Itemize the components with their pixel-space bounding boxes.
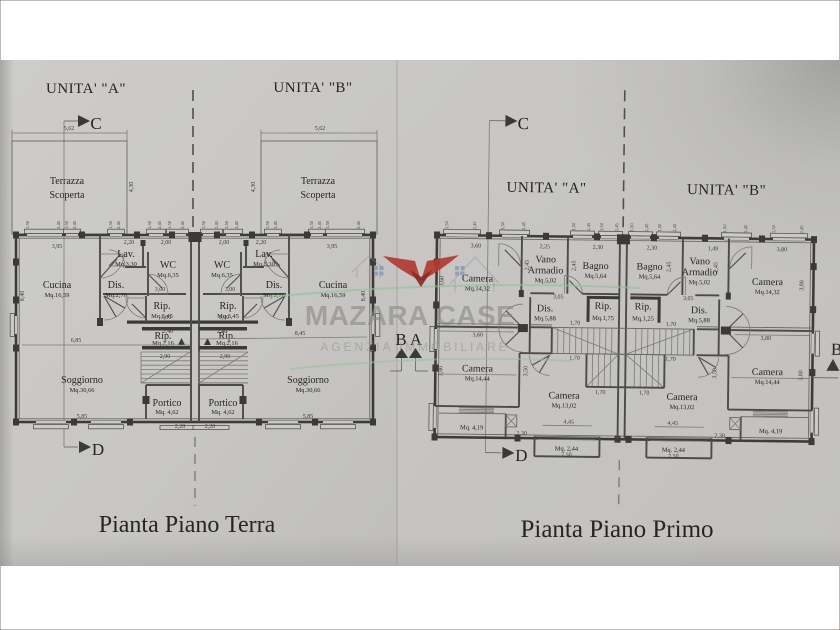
svg-text:C: C	[518, 114, 530, 133]
svg-text:2,30: 2,30	[593, 245, 604, 251]
svg-text:2,90: 2,90	[160, 354, 171, 360]
svg-text:5,62: 5,62	[64, 126, 75, 132]
svg-text:Mq.30,66: Mq.30,66	[296, 387, 321, 394]
svg-text:2,00: 2,00	[161, 240, 172, 246]
svg-text:1,70: 1,70	[666, 322, 677, 328]
svg-text:Scoperta: Scoperta	[301, 190, 337, 201]
svg-text:Vano: Vano	[535, 254, 556, 265]
svg-text:Rip.: Rip.	[635, 301, 652, 312]
svg-text:WC: WC	[160, 260, 176, 271]
svg-text:Mq. 4,62: Mq. 4,62	[211, 409, 234, 416]
svg-text:8,40: 8,40	[20, 291, 26, 302]
svg-text:4,45: 4,45	[563, 420, 574, 426]
svg-text:2,30: 2,30	[516, 431, 527, 437]
svg-text:Mq. 4,62: Mq. 4,62	[155, 409, 178, 416]
svg-text:Camera: Camera	[752, 367, 784, 378]
svg-text:Lav.: Lav.	[255, 249, 272, 260]
svg-text:Dis.: Dis.	[537, 303, 554, 314]
svg-text:Mq.6,35: Mq.6,35	[211, 272, 233, 279]
svg-text:Mq.2,16: Mq.2,16	[152, 340, 174, 347]
svg-text:3,60: 3,60	[439, 276, 445, 287]
svg-text:3,00: 3,00	[219, 315, 230, 321]
svg-text:2,20: 2,20	[256, 240, 267, 246]
svg-text:2,30: 2,30	[714, 433, 725, 439]
svg-text:Dis.: Dis.	[691, 305, 708, 316]
svg-text:AGENZIA IMMOBILIARE: AGENZIA IMMOBILIARE	[320, 340, 509, 354]
svg-text:Mq.5,64: Mq.5,64	[585, 273, 608, 280]
svg-text:Rip.: Rip.	[154, 301, 171, 312]
svg-text:Cucina: Cucina	[319, 280, 348, 291]
svg-text:Mq.2,16: Mq.2,16	[216, 340, 238, 347]
svg-text:1,70: 1,70	[595, 390, 606, 396]
svg-text:7,50: 7,50	[561, 453, 572, 459]
svg-text:Terrazza: Terrazza	[301, 176, 336, 187]
svg-text:2,90: 2,90	[220, 354, 231, 360]
svg-text:Mq.13,02: Mq.13,02	[551, 402, 576, 409]
svg-text:2,30: 2,30	[647, 246, 658, 252]
svg-text:Mq.1,75: Mq.1,75	[592, 315, 614, 322]
svg-text:Camera: Camera	[666, 392, 698, 403]
svg-text:Mq.14,32: Mq.14,32	[755, 289, 780, 296]
svg-text:Terrazza: Terrazza	[50, 176, 85, 187]
svg-text:Mq.3,30: Mq.3,30	[253, 261, 275, 268]
svg-text:Scoperta: Scoperta	[50, 190, 86, 201]
svg-text:Soggiorno: Soggiorno	[61, 375, 103, 386]
svg-text:Camera: Camera	[752, 277, 784, 288]
svg-text:UNITA' "A": UNITA' "A"	[507, 180, 587, 197]
svg-text:2,25: 2,25	[540, 244, 551, 250]
svg-text:WC: WC	[214, 260, 230, 271]
svg-text:1,70: 1,70	[639, 390, 650, 396]
svg-text:2,45: 2,45	[667, 262, 673, 273]
svg-text:3,80: 3,80	[799, 280, 805, 291]
svg-text:3,80: 3,80	[798, 370, 804, 381]
svg-text:3,00: 3,00	[155, 287, 166, 293]
svg-text:3,95: 3,95	[52, 244, 63, 250]
svg-text:Portico: Portico	[153, 398, 182, 409]
svg-text:3,80: 3,80	[760, 336, 771, 342]
svg-text:Rip.: Rip.	[220, 301, 237, 312]
svg-text:D: D	[515, 446, 528, 465]
svg-text:Pianta Piano Primo: Pianta Piano Primo	[520, 516, 713, 543]
svg-text:8,45: 8,45	[295, 331, 306, 337]
svg-text:5,85: 5,85	[303, 414, 314, 420]
svg-text:2,45: 2,45	[572, 260, 578, 271]
svg-text:4,45: 4,45	[667, 421, 678, 427]
svg-text:3,00: 3,00	[161, 315, 172, 321]
svg-text:Mq.3,30: Mq.3,30	[115, 261, 137, 268]
svg-text:5,85: 5,85	[77, 414, 88, 420]
svg-text:2,40: 2,40	[217, 329, 228, 335]
svg-text:Mq.13,02: Mq.13,02	[669, 404, 694, 411]
svg-text:Camera: Camera	[548, 390, 580, 401]
svg-text:UNITA' "B": UNITA' "B"	[273, 80, 352, 96]
svg-text:Mq.5,02: Mq.5,02	[535, 277, 557, 284]
svg-text:4,30: 4,30	[129, 182, 135, 193]
svg-text:4,30: 4,30	[251, 182, 257, 193]
svg-text:Bagno: Bagno	[637, 261, 663, 272]
svg-text:3,95: 3,95	[327, 244, 338, 250]
svg-text:Mq.5,88: Mq.5,88	[534, 315, 556, 322]
svg-text:UNITA' "B": UNITA' "B"	[687, 182, 766, 199]
svg-text:Mq.2,76: Mq.2,76	[105, 292, 127, 299]
svg-text:Cucina: Cucina	[43, 280, 72, 291]
svg-text:Camera: Camera	[462, 363, 494, 374]
svg-text:Mq.30,66: Mq.30,66	[70, 387, 95, 394]
svg-text:2,00: 2,00	[219, 240, 230, 246]
svg-text:Mq.14,44: Mq.14,44	[755, 379, 781, 386]
svg-text:Armadio: Armadio	[528, 265, 564, 276]
svg-text:Rip.: Rip.	[595, 301, 612, 312]
svg-text:3,80: 3,80	[777, 247, 788, 253]
svg-text:2,20: 2,20	[175, 424, 186, 430]
svg-text:3,60: 3,60	[473, 332, 484, 338]
svg-text:Mq. 4,19: Mq. 4,19	[460, 424, 483, 431]
svg-text:2,20: 2,20	[205, 424, 216, 430]
svg-text:5,62: 5,62	[315, 126, 326, 132]
svg-text:Camera: Camera	[462, 273, 494, 284]
svg-text:3,80: 3,80	[438, 366, 444, 377]
svg-text:2,45: 2,45	[714, 262, 720, 273]
svg-text:3,05: 3,05	[553, 294, 564, 300]
svg-text:3,00: 3,00	[225, 287, 236, 293]
svg-text:Bagno: Bagno	[583, 261, 609, 272]
svg-text:Dis.: Dis.	[266, 280, 282, 291]
svg-text:1,70: 1,70	[665, 357, 676, 363]
svg-text:3,05: 3,05	[683, 296, 694, 302]
svg-text:2,20: 2,20	[124, 240, 135, 246]
svg-text:Mq.6,35: Mq.6,35	[157, 272, 179, 279]
svg-text:6,85: 6,85	[71, 338, 82, 344]
svg-text:UNITA' "A": UNITA' "A"	[46, 81, 126, 97]
svg-text:Mq.5,64: Mq.5,64	[639, 273, 662, 280]
svg-text:7,50: 7,50	[668, 454, 679, 460]
svg-text:Armadio: Armadio	[682, 267, 718, 278]
svg-text:B: B	[831, 340, 840, 359]
svg-text:3,50: 3,50	[523, 366, 529, 377]
svg-text:Mq.5,02: Mq.5,02	[689, 279, 711, 286]
svg-text:Lav.: Lav.	[117, 249, 134, 260]
svg-text:Mq. 4,19: Mq. 4,19	[759, 428, 782, 435]
svg-text:Vano: Vano	[689, 256, 710, 267]
svg-text:2,40: 2,40	[163, 329, 174, 335]
svg-text:MAZARA CASE: MAZARA CASE	[305, 300, 515, 331]
svg-text:1,49: 1,49	[708, 246, 719, 252]
svg-text:3,50: 3,50	[712, 368, 718, 379]
svg-text:Pianta Piano Terra: Pianta Piano Terra	[99, 512, 276, 538]
svg-text:Soggiorno: Soggiorno	[287, 375, 329, 386]
svg-text:C: C	[90, 114, 101, 133]
svg-text:Mq.5,88: Mq.5,88	[688, 317, 710, 324]
svg-text:Portico: Portico	[209, 398, 238, 409]
svg-text:3,60: 3,60	[471, 243, 482, 249]
svg-text:2,45: 2,45	[525, 260, 531, 271]
svg-text:Mq.16,59: Mq.16,59	[45, 292, 70, 299]
svg-text:Dis.: Dis.	[108, 280, 124, 291]
svg-text:Mq.14,44: Mq.14,44	[465, 375, 491, 382]
svg-text:Mq.1,25: Mq.1,25	[632, 315, 654, 322]
svg-text:1,70: 1,70	[570, 321, 581, 327]
svg-text:D: D	[92, 440, 104, 459]
